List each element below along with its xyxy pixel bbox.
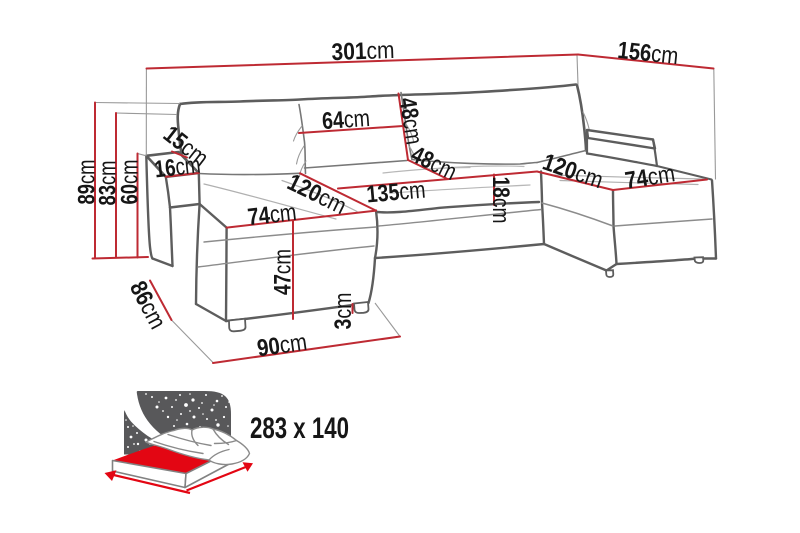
svg-text:64cm: 64cm <box>321 105 371 135</box>
svg-text:135cm: 135cm <box>365 176 426 208</box>
svg-text:74cm: 74cm <box>246 199 298 231</box>
svg-text:60cm: 60cm <box>117 160 144 205</box>
svg-text:16cm: 16cm <box>153 151 202 183</box>
svg-text:283 x 140: 283 x 140 <box>250 412 349 445</box>
svg-text:18cm: 18cm <box>487 177 514 224</box>
svg-text:3cm: 3cm <box>330 293 357 330</box>
svg-text:47cm: 47cm <box>270 249 297 295</box>
svg-text:301cm: 301cm <box>331 37 395 66</box>
